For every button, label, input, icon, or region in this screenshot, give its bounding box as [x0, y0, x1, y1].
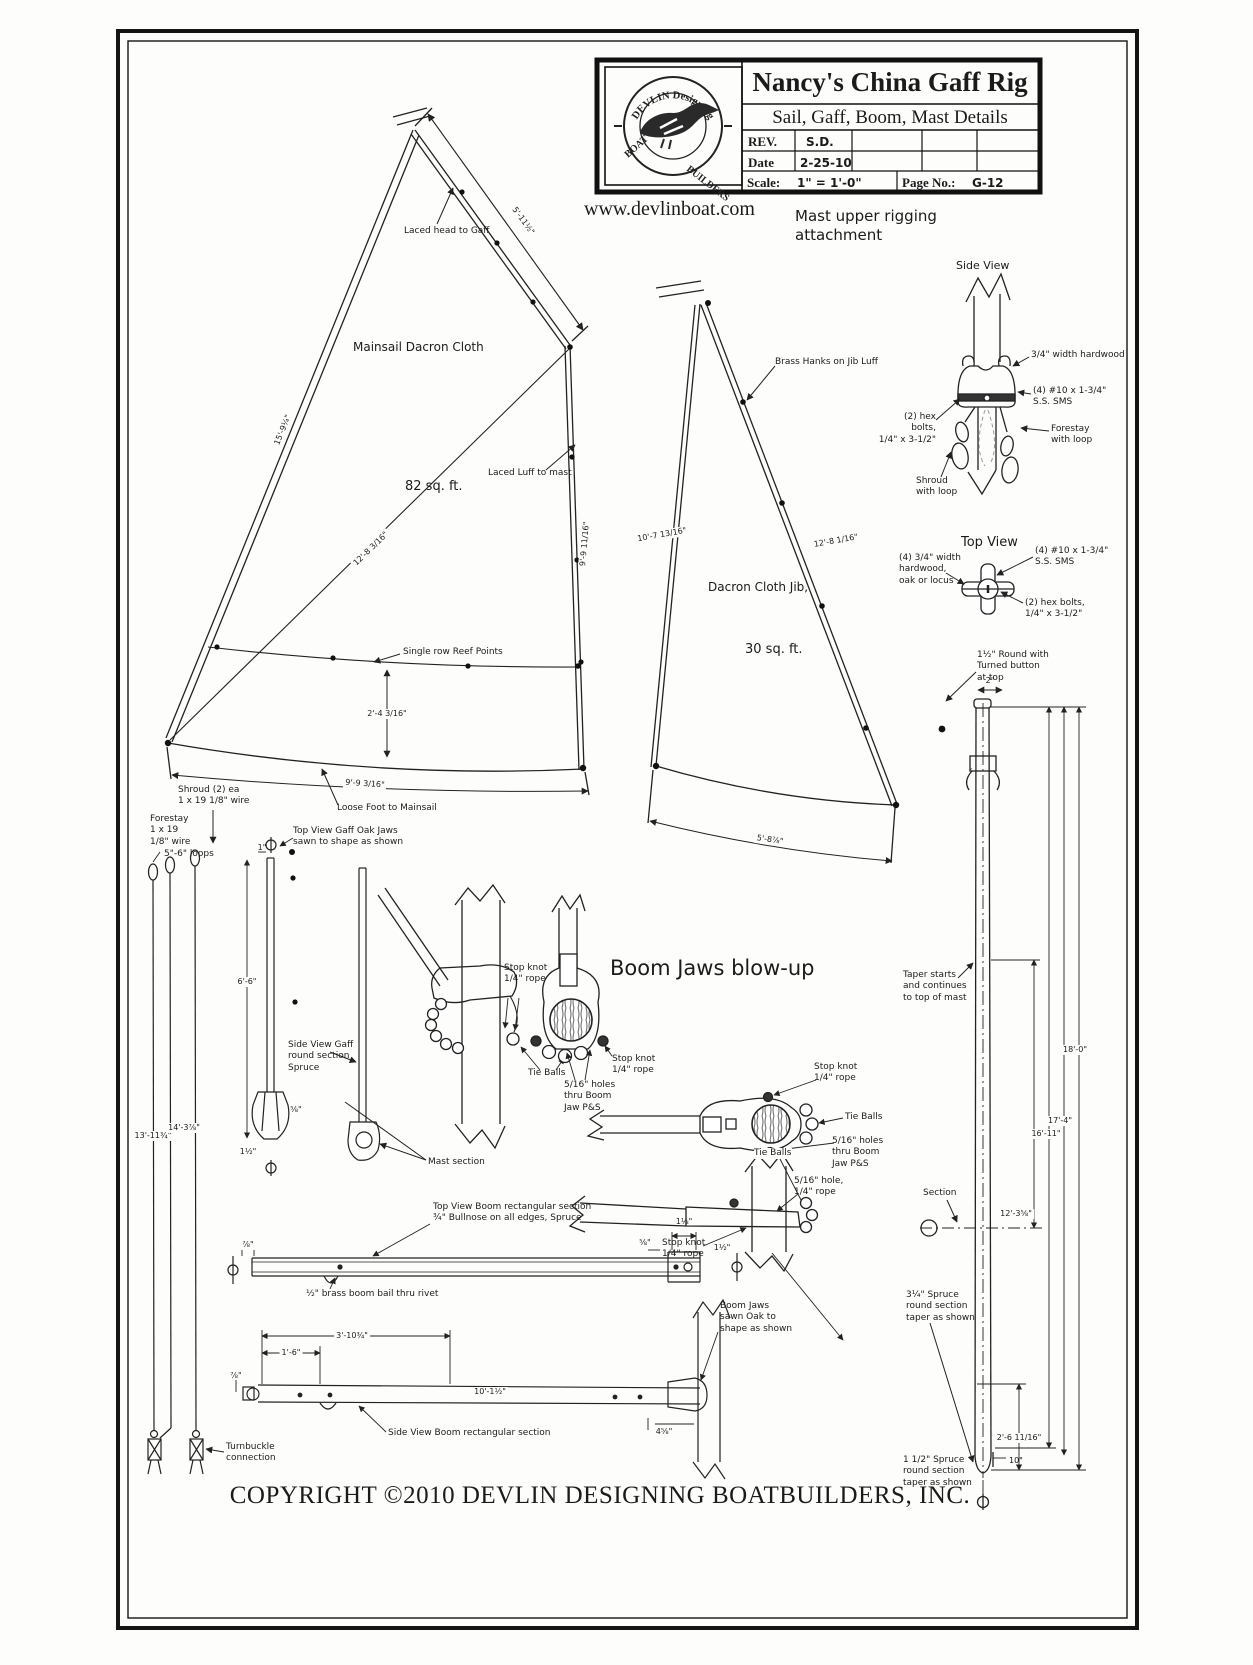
sms-screws-top-label: (4) #10 x 1-3/4" S.S. SMS [1035, 546, 1108, 569]
boom-jaw-holes-label-1: 5/16" holes thru Boom Jaw P&S [564, 1080, 615, 1114]
side-view-label: Side View [956, 259, 1009, 273]
top-view-label: Top View [961, 535, 1018, 551]
boom-dim-d-top: ⅞" [242, 1240, 253, 1250]
stop-knot-label-1: Stop knot 1/4" rope [504, 963, 547, 986]
dim-reef-height: 2'-4 3/16" [365, 709, 408, 719]
gaff-dim-length: 6'-6" [236, 977, 259, 987]
rigging-side-view [936, 274, 1049, 494]
turnbuckle [190, 1431, 203, 1475]
boom-dim-g: 10'-1½" [472, 1387, 508, 1397]
tie-balls-label-1: Tie Balls [528, 1068, 566, 1079]
loops-label: 5"-6" loops [164, 849, 214, 860]
stop-knot-label-2: Stop knot 1/4" rope [612, 1054, 655, 1077]
forestay-loop-label: Forestay with loop [1051, 424, 1092, 447]
hardwood-label: 3/4" width hardwood [1031, 350, 1125, 361]
rev-label: REV. [748, 134, 777, 150]
date-label: Date [748, 155, 774, 171]
turnbuckle-label: Turnbuckle connection [226, 1442, 276, 1465]
jib-outline [648, 281, 897, 863]
website-url: www.devlinboat.com [584, 197, 755, 222]
centerline-symbol [266, 837, 276, 853]
laced-luff-label: Laced Luff to mast [488, 468, 572, 479]
jib-name: Dacron Cloth Jib, [708, 580, 808, 595]
rigging-section-title: Mast upper rigging attachment [795, 207, 937, 245]
mast-dim-18: 18'-0" [1061, 1045, 1089, 1055]
reef-points-label: Single row Reef Points [403, 647, 503, 658]
sail-grommets [165, 189, 946, 1004]
date-value: 2-25-10 [800, 156, 852, 171]
hex-bolts-label: (2) hex bolts, 1/4" x 3-1/2" [878, 412, 936, 446]
gaff-jaws-on-mast [378, 885, 564, 1148]
mainsail-outline [166, 108, 589, 805]
boom-jaws-title: Boom Jaws blow-up [610, 955, 815, 981]
mast-dim-17: 17'-4" [1046, 1116, 1074, 1126]
shroud-loop-label: Shroud with loop [916, 476, 957, 499]
mainsail-name: Mainsail Dacron Cloth [353, 340, 484, 355]
boom-hole-label: 5/16" hole, 1/4" rope [794, 1176, 843, 1199]
drawing-sheet: DEVLIN Designing BOAT BUILDERS [0, 0, 1253, 1665]
mast-dim-heel: 2'-6 11/16" [995, 1433, 1044, 1443]
mast-drawing [920, 672, 1086, 1510]
brass-hanks-label: Brass Hanks on Jib Luff [775, 357, 878, 368]
sms-screws-label: (4) #10 x 1-3/4" S.S. SMS [1033, 386, 1106, 409]
scale-value: 1" = 1'-0" [797, 176, 862, 191]
sheet-title: Nancy's China Gaff Rig [742, 66, 1038, 100]
gaff-dim-small: ⅝" [290, 1105, 301, 1115]
mainsail-area: 82 sq. ft. [405, 479, 463, 495]
boom-dim-c: 1½" [714, 1243, 731, 1253]
boom-jaws-sawn-label: Boom Jaws sawn Oak to shape as shown [720, 1301, 792, 1335]
forestay-spec-label: Forestay 1 x 19 1/8" wire [150, 814, 190, 848]
copyright-text: COPYRIGHT ©2010 DEVLIN DESIGNING BOATBUI… [180, 1480, 1020, 1511]
boom-bail-label: ½" brass boom bail thru rivet [306, 1289, 438, 1300]
gaff-dim-jaw: 1½" [240, 1147, 257, 1157]
page-value: G-12 [972, 176, 1004, 191]
turnbuckle [148, 1431, 161, 1475]
stop-knot-label-3: Stop knot 1/4" rope [814, 1062, 857, 1085]
mast-dim-12: 12'-3⅝" [998, 1209, 1034, 1219]
gaff-top-view-label: Top View Gaff Oak Jaws sawn to shape as … [293, 826, 403, 849]
tie-balls-label-3: Tie Balls [754, 1148, 792, 1159]
centerline-symbol [732, 1253, 742, 1281]
boom-jaws-horizontal [588, 1080, 843, 1157]
mast-dim-top: 2" [986, 676, 995, 686]
dim-forestay-wire: 14'-3⅞" [166, 1123, 202, 1133]
forestay-shrouds [148, 810, 224, 1474]
scale-label: Scale: [747, 175, 780, 191]
page-label: Page No.: [902, 175, 955, 191]
stop-knot-label-4: Stop knot 1/4" rope [662, 1238, 705, 1261]
laced-head-label: Laced head to Gaff [404, 226, 490, 237]
tie-balls-label-2: Tie Balls [845, 1112, 883, 1123]
boom-dim-b: ⅝" [639, 1238, 650, 1248]
jib-area: 30 sq. ft. [745, 642, 803, 658]
sheet-subtitle: Sail, Gaff, Boom, Mast Details [742, 106, 1038, 130]
boom-dim-d-side: ⅞" [230, 1371, 241, 1381]
boom-dim-e: 3'-10¾" [334, 1331, 370, 1341]
boom-dim-f: 1'-6" [280, 1348, 303, 1358]
mast-dim-16: 16'-11" [1029, 1129, 1062, 1139]
taper-label: Taper starts and continues to top of mas… [903, 970, 967, 1004]
section-label: Section [923, 1188, 956, 1199]
gaff-side-view-label: Side View Gaff round section Spruce [288, 1040, 353, 1074]
boom-side-view-label: Side View Boom rectangular section [388, 1428, 551, 1439]
boom-jaw-holes-label-2: 5/16" holes thru Boom Jaw P&S [832, 1136, 883, 1170]
hardwood-top-label: (4) 3/4" width hardwood, oak or locus [899, 553, 961, 587]
mast-section-label: Mast section [428, 1157, 485, 1168]
logo-boat-text: BOAT [623, 133, 651, 160]
gaff-dim-1: 1" [258, 843, 267, 853]
spruce-upper-label: 3¼" Spruce round section taper as shown [906, 1290, 975, 1324]
centerline-symbol [228, 1256, 238, 1284]
centerline-symbol [266, 1160, 276, 1176]
hex-bolts-top-label: (2) hex bolts, 1/4" x 3-1/2" [1025, 598, 1085, 621]
shroud-spec-label: Shroud (2) ea 1 x 19 1/8" wire [178, 785, 249, 808]
boom-top-view-label: Top View Boom rectangular section ¾" Bul… [433, 1202, 591, 1225]
boom-jaws-vertical [531, 895, 612, 1080]
gaff-drawing [247, 837, 426, 1176]
rev-value: S.D. [806, 135, 834, 150]
loose-foot-label: Loose Foot to Mainsail [337, 803, 437, 814]
boom-dim-h: 4⅝" [656, 1427, 673, 1437]
boom-dim-a: 1⅛" [676, 1217, 693, 1227]
mast-dim-ten: 10" [1009, 1456, 1023, 1466]
